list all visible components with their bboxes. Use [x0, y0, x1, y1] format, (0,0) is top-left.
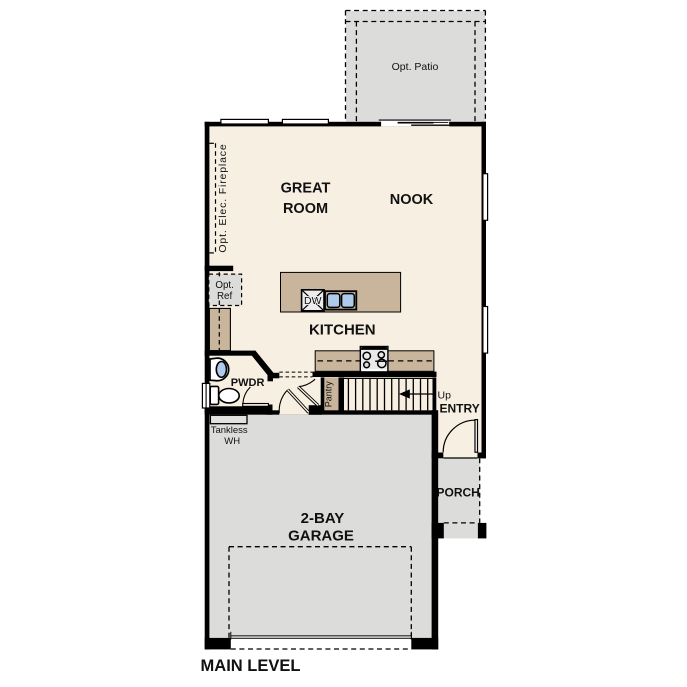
svg-text:Tankless: Tankless: [211, 425, 248, 436]
svg-text:ENTRY: ENTRY: [439, 401, 479, 415]
svg-text:Opt. Patio: Opt. Patio: [392, 61, 439, 73]
svg-text:Up: Up: [438, 390, 452, 402]
svg-text:Ref: Ref: [217, 291, 233, 302]
svg-text:PWDR: PWDR: [231, 377, 265, 389]
svg-text:Opt.: Opt.: [215, 280, 234, 291]
svg-text:Opt. Elec. Fireplace: Opt. Elec. Fireplace: [217, 143, 229, 252]
svg-text:NOOK: NOOK: [390, 192, 434, 208]
svg-text:DW: DW: [304, 295, 322, 307]
svg-text:KITCHEN: KITCHEN: [309, 322, 376, 339]
svg-text:2-BAY: 2-BAY: [301, 510, 345, 527]
svg-text:GARAGE: GARAGE: [288, 528, 354, 545]
svg-text:ROOM: ROOM: [283, 201, 328, 217]
svg-text:WH: WH: [224, 436, 240, 447]
svg-text:PORCH: PORCH: [437, 486, 480, 500]
svg-text:Pantry: Pantry: [324, 381, 334, 408]
svg-text:GREAT: GREAT: [281, 181, 331, 197]
svg-text:MAIN LEVEL: MAIN LEVEL: [201, 657, 301, 675]
